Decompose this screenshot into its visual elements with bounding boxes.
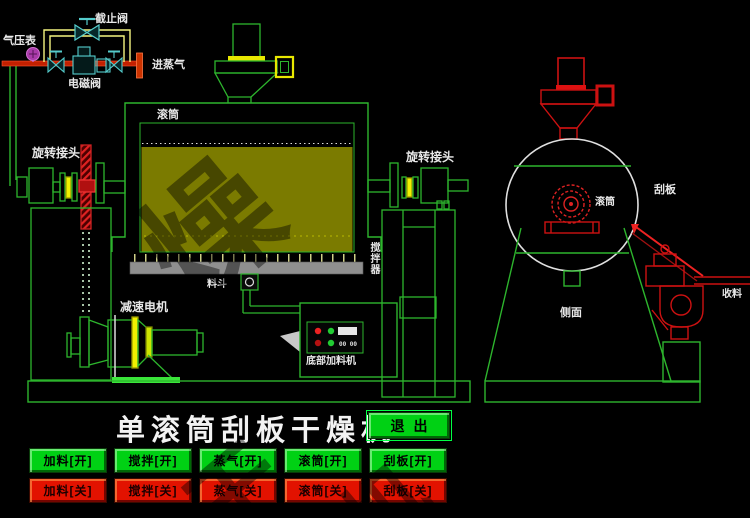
feeder-led-red-2 [315,340,321,346]
steam-off-button[interactable]: 蒸气[关] [199,478,277,503]
pressure-gauge-label: 气压表 [2,33,37,47]
scraper-on-button[interactable]: 刮板[开] [369,448,447,473]
drum-off-button[interactable]: 滚筒[关] [284,478,362,503]
saddle-lines [514,166,631,253]
discharge-pipe [243,290,300,313]
feed-off-button[interactable]: 加料[关] [29,478,107,503]
solenoid-valve-label: 电磁阀 [68,76,101,90]
drum-front: 滚筒 [112,103,381,252]
drum-front-label: 滚筒 [157,107,179,121]
feeder-led-green-1 [328,328,334,334]
collect-label: 收料 [722,287,742,300]
solenoid-valve-icon [73,47,110,74]
feed-hopper-front [215,24,293,103]
gear-motor-label: 减速电机 [120,299,168,314]
drive-belt [83,232,89,315]
side-hopper [541,58,613,139]
steam-on-button[interactable]: 蒸气[开] [199,448,277,473]
collector-stand [663,342,700,382]
outlet-box [241,274,258,290]
gear-motor: 减速电机 [67,299,203,383]
bottom-feeder-label: 底部加料机 [306,354,356,367]
drum-axle [545,185,599,233]
rotary-joint-left-label: 旋转接头 [31,145,80,160]
steam-inlet-label: 进蒸气 [152,57,185,71]
steam-feed-pipe [10,64,16,186]
base-frame-side [485,381,700,402]
feeder-display-value: 00 00 [339,341,357,348]
feed-on-button[interactable]: 加料[开] [29,448,107,473]
side-view: 滚筒 刮板 侧面 收料 [485,58,750,402]
scraper-label: 刮板 [654,182,677,196]
drum-on-button[interactable]: 滚筒[开] [284,448,362,473]
feeder-display-window [338,327,357,335]
base-frame-front [28,381,470,402]
drum-side-label: 滚筒 [595,195,615,208]
hmi-screen: 气压表 截止阀 电磁阀 进蒸气 滚筒 料斗 [0,0,750,518]
bottom-feeder-box: 00 00 底部加料机 [280,303,397,377]
exit-button[interactable]: 退出 [368,412,450,439]
page-title: 单滚筒刮板干燥机 [116,407,396,449]
agitate-off-button[interactable]: 搅拌[关] [114,478,192,503]
agitate-on-button[interactable]: 搅拌[开] [114,448,192,473]
scraper-mechanism [646,245,703,339]
rotary-joint-right-label: 旋转接头 [405,149,454,164]
scraper-off-button[interactable]: 刮板[关] [369,478,447,503]
stand-trapezoid [485,228,671,381]
feeder-led-red-1 [315,328,321,334]
rotary-joint-right: 旋转接头 [368,149,468,209]
hopper-label: 料斗 [207,277,227,290]
side-view-label: 侧面 [560,305,582,319]
collect-pipe [694,277,750,284]
feeder-panel [307,322,363,353]
feeder-chute [280,331,300,352]
feeder-led-green-2 [328,340,334,346]
stop-valve-label: 截止阀 [95,11,128,25]
pressure-gauge-icon [27,48,40,63]
agitator-label: 搅拌器 [366,242,381,275]
steam-inlet-flange [137,53,143,78]
